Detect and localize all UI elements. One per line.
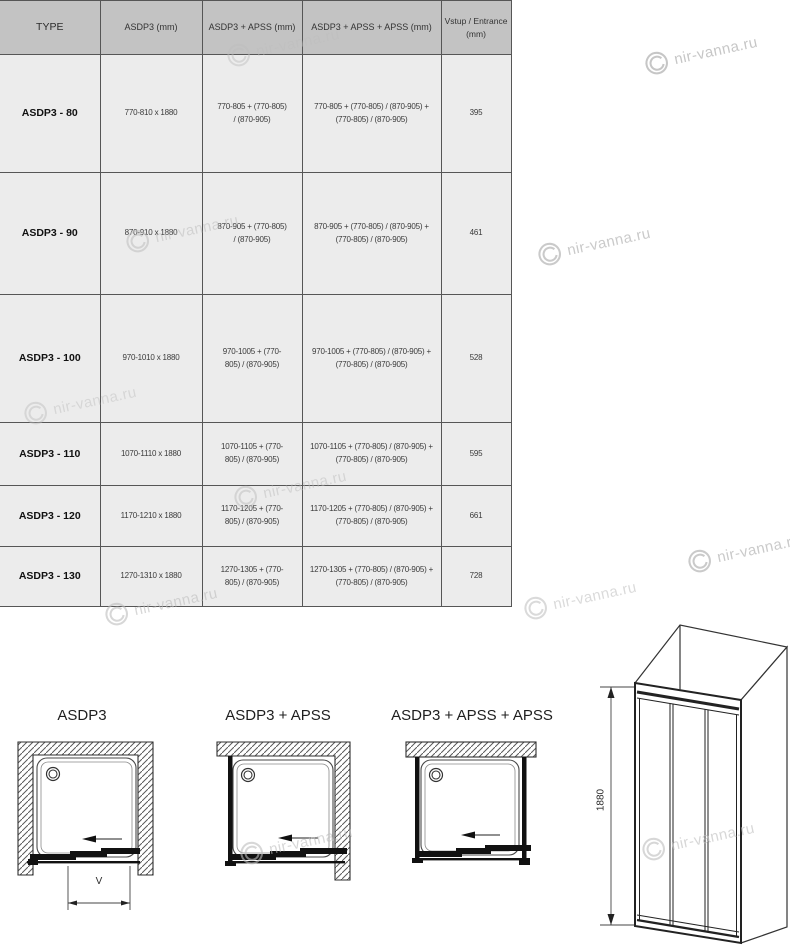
asdp3-apss-dim-cell: 870-905 + (770-805) / (870-905) (202, 173, 302, 295)
table-row: ASDP3 - 120 1170-1210 x 1880 1170-1205 +… (0, 486, 511, 547)
entrance-cell: 728 (441, 547, 511, 607)
asdp3-dim-cell: 1070-1110 x 1880 (100, 423, 202, 486)
col-header-type: TYPE (0, 1, 100, 55)
entrance-cell: 661 (441, 486, 511, 547)
col-header-asdp3-apss: ASDP3 + APSS (mm) (202, 1, 302, 55)
asdp3-apss-dim-cell: 1270-1305 + (770-805) / (870-905) (202, 547, 302, 607)
table-row: ASDP3 - 130 1270-1310 x 1880 1270-1305 +… (0, 547, 511, 607)
box-right-face (741, 647, 787, 943)
col-header-asdp3: ASDP3 (mm) (100, 1, 202, 55)
shower-tray (37, 758, 136, 857)
watermark: nir-vanna.ru (640, 28, 760, 80)
table-row: ASDP3 - 110 1070-1110 x 1880 1070-1105 +… (0, 423, 511, 486)
height-dim-label: 1880 (596, 789, 607, 811)
entrance-cell: 595 (441, 423, 511, 486)
asdp3-apss-apss-dim-cell: 770-805 + (770-805) / (870-905) + (770-8… (302, 55, 441, 173)
entrance-cell: 528 (441, 295, 511, 423)
asdp3-dim-cell: 970-1010 x 1880 (100, 295, 202, 423)
table-row: ASDP3 - 100 970-1010 x 1880 970-1005 + (… (0, 295, 511, 423)
entrance-dimension (68, 866, 130, 910)
entrance-dim-label: V (96, 876, 103, 887)
type-cell: ASDP3 - 100 (0, 295, 100, 423)
watermark-logo-icon (640, 46, 673, 79)
type-cell: ASDP3 - 110 (0, 423, 100, 486)
asdp3-dim-cell: 770-810 x 1880 (100, 55, 202, 173)
asdp3-apss-apss-dim-cell: 1070-1105 + (770-805) / (870-905) + (770… (302, 423, 441, 486)
shower-tray (233, 760, 333, 857)
plan3-title: ASDP3 + APSS + APSS (391, 707, 553, 724)
asdp3-apss-plan-diagram (210, 735, 360, 885)
door-front-face (635, 683, 741, 943)
entrance-cell: 395 (441, 55, 511, 173)
niche-walls (406, 742, 536, 757)
asdp3-dim-cell: 1170-1210 x 1880 (100, 486, 202, 547)
asdp3-apss-apss-dim-cell: 970-1005 + (770-805) / (870-905) + (770-… (302, 295, 441, 423)
watermark-logo-icon (519, 591, 552, 624)
asdp3-dim-cell: 870-910 x 1880 (100, 173, 202, 295)
watermark: nir-vanna.ru (683, 526, 790, 578)
plan1-title: ASDP3 (57, 707, 106, 724)
plan2-title: ASDP3 + APSS (225, 707, 330, 724)
asdp3-apss-dim-cell: 970-1005 + (770-805) / (870-905) (202, 295, 302, 423)
asdp3-apss-apss-dim-cell: 870-905 + (770-805) / (870-905) + (770-8… (302, 173, 441, 295)
watermark-logo-icon (533, 237, 566, 270)
spec-sheet-page: { "watermark": { "text": "nir-vanna.ru" … (0, 0, 790, 950)
asdp3-apss-dim-cell: 1070-1105 + (770-805) / (870-905) (202, 423, 302, 486)
asdp3-apss-apss-dim-cell: 1170-1205 + (770-805) / (870-905) + (770… (302, 486, 441, 547)
watermark: nir-vanna.ru (533, 219, 653, 271)
watermark-text: nir-vanna.ru (716, 531, 790, 565)
door-elevation-3d-diagram (588, 612, 790, 950)
watermark-text: nir-vanna.ru (552, 578, 639, 612)
asdp3-apss-dim-cell: 1170-1205 + (770-805) / (870-905) (202, 486, 302, 547)
table-row: ASDP3 - 80 770-810 x 1880 770-805 + (770… (0, 55, 511, 173)
dimensions-table: TYPE ASDP3 (mm) ASDP3 + APSS (mm) ASDP3 … (0, 0, 512, 607)
type-cell: ASDP3 - 80 (0, 55, 100, 173)
watermark-logo-icon (683, 544, 716, 577)
shower-tray (421, 760, 519, 855)
asdp3-apss-apss-dim-cell: 1270-1305 + (770-805) / (870-905) + (770… (302, 547, 441, 607)
entrance-cell: 461 (441, 173, 511, 295)
asdp3-apss-apss-plan-diagram (393, 735, 548, 875)
col-header-asdp3-apss-apss: ASDP3 + APSS + APSS (mm) (302, 1, 441, 55)
table-row: ASDP3 - 90 870-910 x 1880 870-905 + (770… (0, 173, 511, 295)
type-cell: ASDP3 - 130 (0, 547, 100, 607)
type-cell: ASDP3 - 120 (0, 486, 100, 547)
watermark-text: nir-vanna.ru (566, 224, 653, 258)
watermark-text: nir-vanna.ru (673, 33, 760, 67)
asdp3-dim-cell: 1270-1310 x 1880 (100, 547, 202, 607)
asdp3-apss-dim-cell: 770-805 + (770-805) / (870-905) (202, 55, 302, 173)
table-header-row: TYPE ASDP3 (mm) ASDP3 + APSS (mm) ASDP3 … (0, 1, 511, 55)
type-cell: ASDP3 - 90 (0, 173, 100, 295)
asdp3-plan-diagram (10, 735, 160, 915)
col-header-entrance: Vstup / Entrance (mm) (441, 1, 511, 55)
